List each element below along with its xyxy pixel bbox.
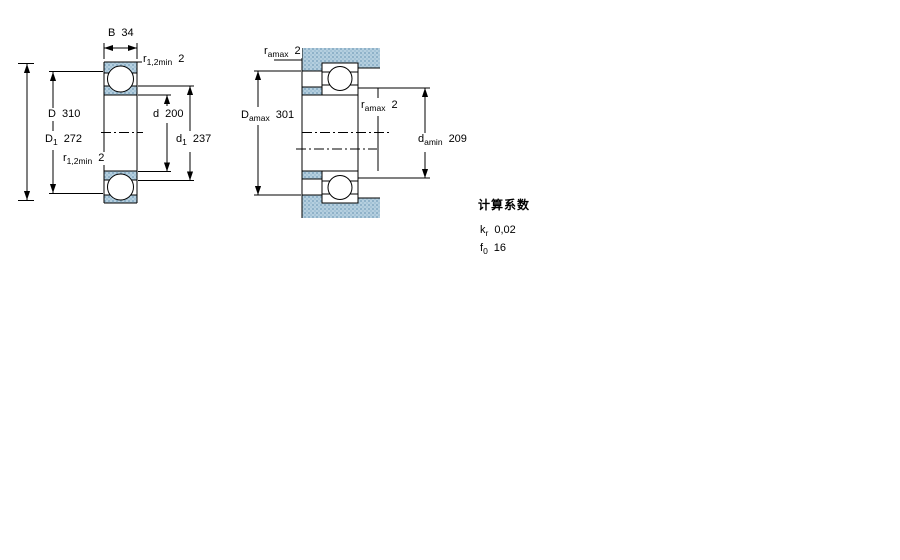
dim-label-d1: d1237	[175, 133, 212, 146]
ball-bottom-right	[328, 176, 352, 200]
dim-label-ra-mid: ramax2	[360, 99, 399, 112]
dim-label-r12-top: r1,2min2	[142, 53, 185, 66]
factor-kr: kr0,02	[479, 224, 517, 237]
factor-value: 16	[494, 242, 506, 254]
dim-label-B: B34	[107, 27, 135, 40]
dim-value: 200	[165, 108, 183, 120]
dim-value: 310	[62, 108, 80, 120]
dim-symbol: d	[153, 108, 159, 120]
Da-extension-lines	[254, 71, 301, 195]
dim-label-D: D310	[47, 108, 81, 121]
dim-symbol: D	[241, 109, 249, 121]
dim-label-ra-top: ramax2	[263, 45, 302, 58]
factor-subscript: r	[486, 228, 489, 238]
dim-value: 272	[64, 133, 82, 145]
ball-top-right	[328, 67, 352, 91]
dim-value: 2	[98, 152, 104, 164]
dim-value: 237	[193, 133, 211, 145]
dim-value: 2	[178, 53, 184, 65]
b-extension-lines	[104, 43, 137, 59]
d-extension-lines	[138, 95, 171, 172]
calculation-factors-heading: 计算系数	[478, 196, 530, 213]
factor-symbol: k	[480, 224, 486, 236]
dim-value: 209	[449, 133, 467, 145]
dim-subscript: amax	[249, 113, 270, 123]
ball-bottom	[108, 174, 134, 200]
dim-label-d: d200	[152, 108, 184, 121]
dim-value: 2	[391, 99, 397, 111]
dim-label-da: damin209	[417, 133, 468, 146]
dim-subscript: 1,2min	[147, 57, 173, 67]
ball-top	[108, 66, 134, 92]
dim-label-Da: Damax301	[240, 109, 295, 122]
factor-value: 0,02	[494, 224, 515, 236]
left-bearing-cross-section	[18, 43, 194, 203]
shoulder-bottom	[302, 171, 323, 179]
dim-subscript: amin	[424, 137, 442, 147]
dim-subscript: 1,2min	[67, 156, 93, 166]
shoulder-top	[302, 87, 323, 95]
technical-drawing	[0, 0, 900, 560]
dim-subscript: 1	[182, 137, 187, 147]
dim-subscript: amax	[268, 49, 289, 59]
dim-subscript: 1	[53, 137, 58, 147]
dim-subscript: amax	[365, 103, 386, 113]
factor-f0: f016	[479, 242, 507, 255]
dim-symbol: D	[48, 108, 56, 120]
dim-value: 301	[276, 109, 294, 121]
dim-value: 2	[294, 45, 300, 57]
dim-value: 34	[121, 27, 133, 39]
dim-label-r12-bottom: r1,2min2	[62, 152, 105, 165]
bearing-drawing-page: B34 r1,2min2 D310 D1272 r1,2min2 d200 d1…	[0, 0, 900, 560]
D-extension-lines	[18, 64, 34, 201]
dim-label-D1: D1272	[44, 133, 83, 146]
right-mounting-cross-section	[254, 48, 430, 218]
factor-subscript: 0	[483, 246, 488, 256]
dim-symbol: B	[108, 27, 115, 39]
dim-symbol: D	[45, 133, 53, 145]
